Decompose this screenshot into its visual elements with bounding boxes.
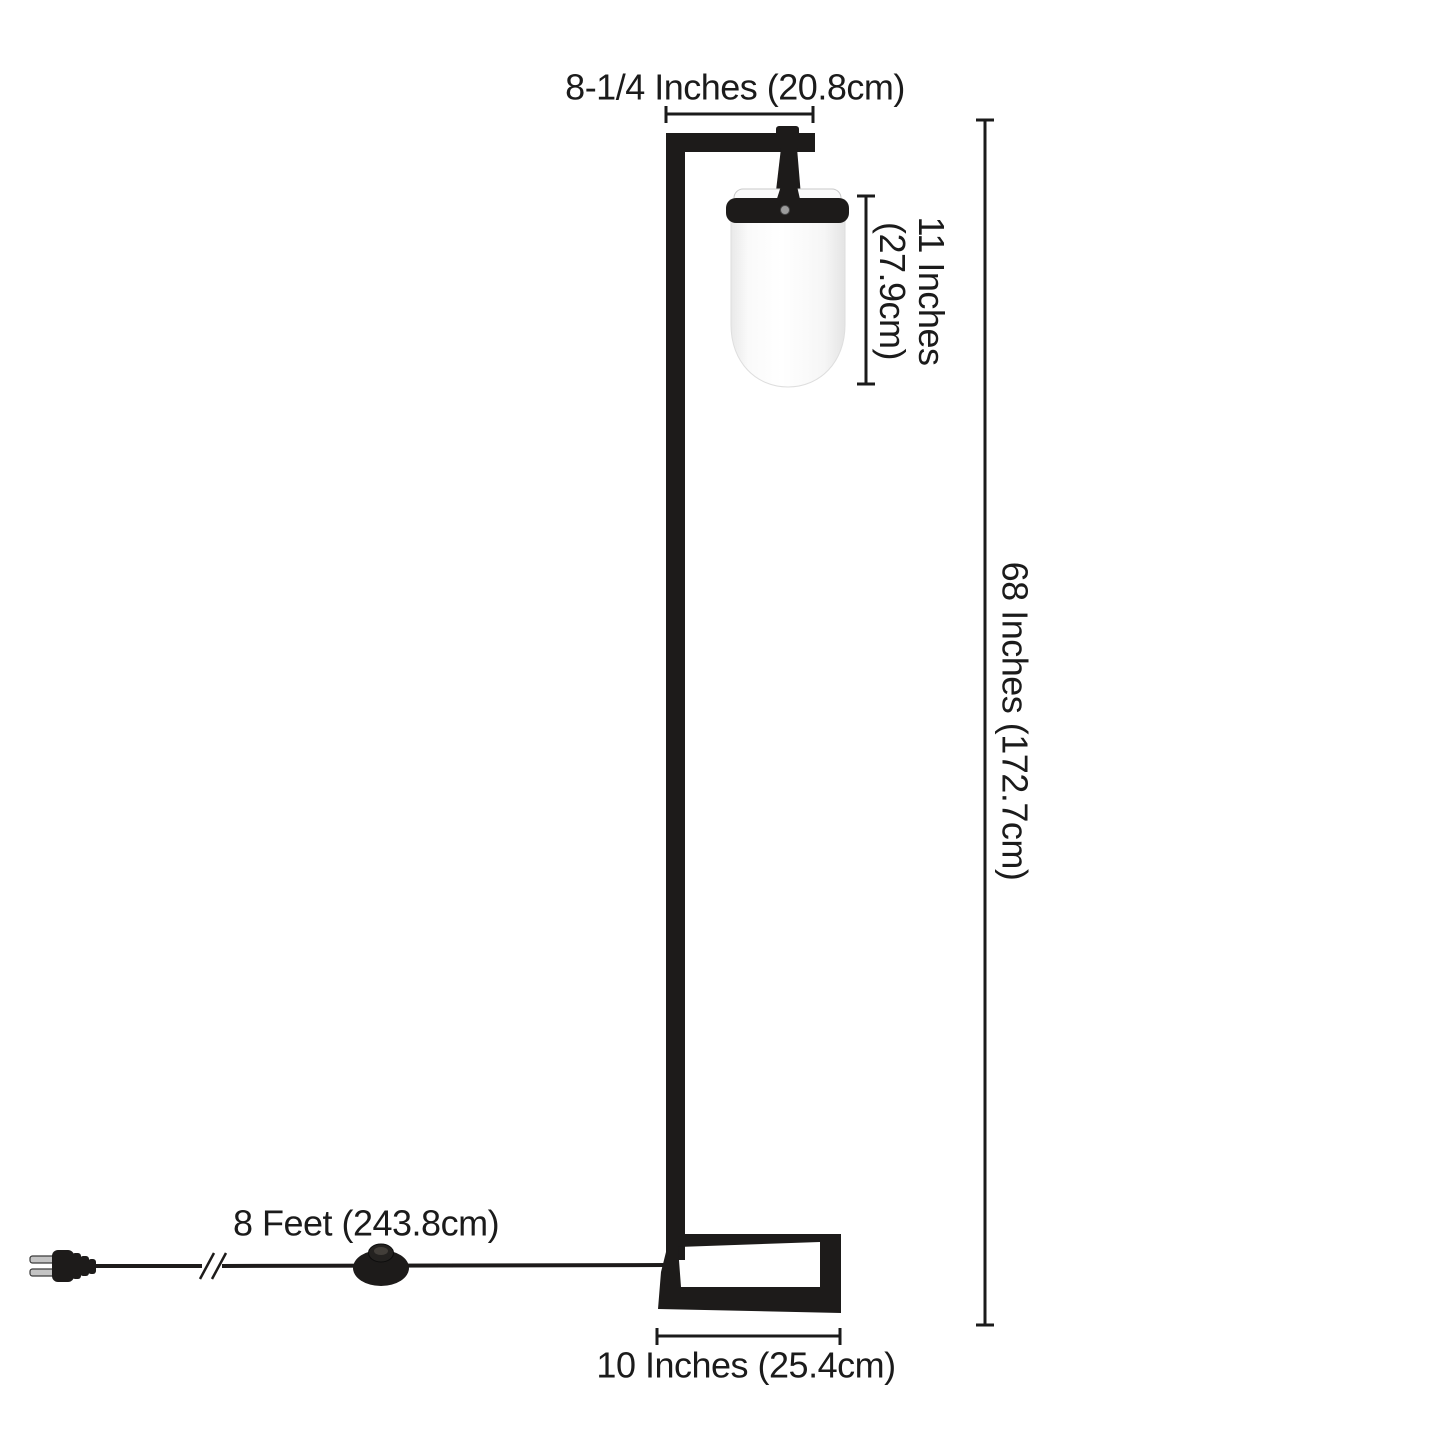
- shade-height-label-line2: (27.9cm): [872, 217, 911, 366]
- foot-switch: [353, 1244, 409, 1286]
- shade-width-label: 8-1/4 Inches (20.8cm): [565, 69, 905, 108]
- cord-length-label: 8 Feet (243.8cm): [233, 1205, 499, 1244]
- shade-hanger-cap: [776, 126, 799, 138]
- lamp-pole: [666, 133, 685, 1260]
- floor-lamp-diagram-canvas: [0, 0, 1445, 1445]
- base-width-dimension-line: [657, 1328, 840, 1345]
- base-width-label: 10 Inches (25.4cm): [596, 1347, 895, 1386]
- lamp-shade: [726, 186, 849, 387]
- shade-height-label: 11 Inches (27.9cm): [872, 217, 950, 366]
- shade-width-dimension-line: [666, 106, 813, 123]
- power-plug-icon: [30, 1250, 96, 1282]
- lamp-base: [658, 1234, 841, 1313]
- hanger-screw: [781, 206, 790, 215]
- lamp-height-dimension-line: [976, 120, 994, 1325]
- shade-height-label-line1: 11 Inches: [911, 217, 950, 366]
- product-dimension-diagram: 8-1/4 Inches (20.8cm) 11 Inches (27.9cm)…: [0, 0, 1445, 1445]
- lamp-height-label: 68 Inches (172.7cm): [995, 562, 1034, 881]
- shade-body: [731, 220, 845, 387]
